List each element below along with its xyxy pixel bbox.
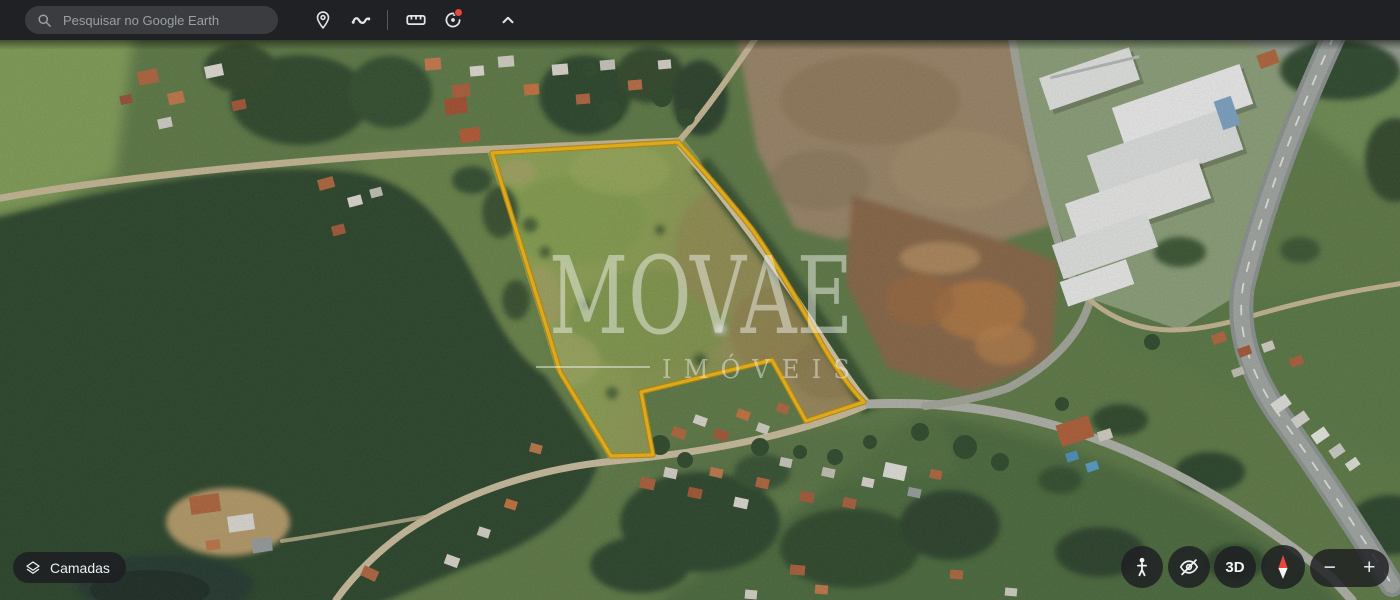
measure-button[interactable] (398, 0, 434, 40)
zoom-out-button[interactable]: − (1310, 549, 1350, 587)
compass-button[interactable] (1261, 545, 1305, 589)
placemark-pin-icon (313, 10, 333, 30)
satellite-imagery: MOVAE IMÓVEIS (0, 40, 1400, 600)
draw-path-button[interactable] (343, 0, 379, 40)
hide-ui-button[interactable] (1168, 546, 1210, 588)
pegman-button[interactable] (1121, 546, 1163, 588)
search-input[interactable] (61, 12, 266, 29)
historical-imagery-button[interactable] (435, 0, 471, 40)
compass-icon (1268, 552, 1298, 582)
search-bar[interactable] (25, 6, 278, 34)
layers-icon (24, 559, 42, 577)
ruler-icon (405, 9, 427, 31)
toolbar (0, 0, 1400, 40)
notification-dot (454, 8, 463, 17)
3d-mode-button[interactable]: 3D (1214, 546, 1256, 588)
watermark-subtitle: IMÓVEIS (662, 353, 862, 385)
chevron-up-icon (499, 11, 517, 29)
search-icon (37, 13, 52, 28)
layers-button-label: Camadas (50, 560, 110, 576)
zoom-in-button[interactable]: + (1350, 549, 1390, 587)
add-placemark-button[interactable] (305, 0, 341, 40)
path-squiggle-icon (350, 9, 372, 31)
watermark-brand: MOVAE (549, 235, 853, 359)
collapse-toolbar-button[interactable] (490, 0, 526, 40)
google-earth-window: MOVAE IMÓVEIS Camadas (0, 0, 1400, 600)
layers-button[interactable]: Camadas (13, 552, 126, 583)
toolbar-divider (387, 10, 388, 30)
eye-slash-icon (1178, 556, 1200, 578)
zoom-control: − + (1310, 549, 1389, 587)
satellite-map-viewport[interactable]: MOVAE IMÓVEIS Camadas (0, 40, 1400, 600)
3d-mode-label: 3D (1225, 559, 1244, 576)
pegman-icon (1131, 556, 1153, 578)
